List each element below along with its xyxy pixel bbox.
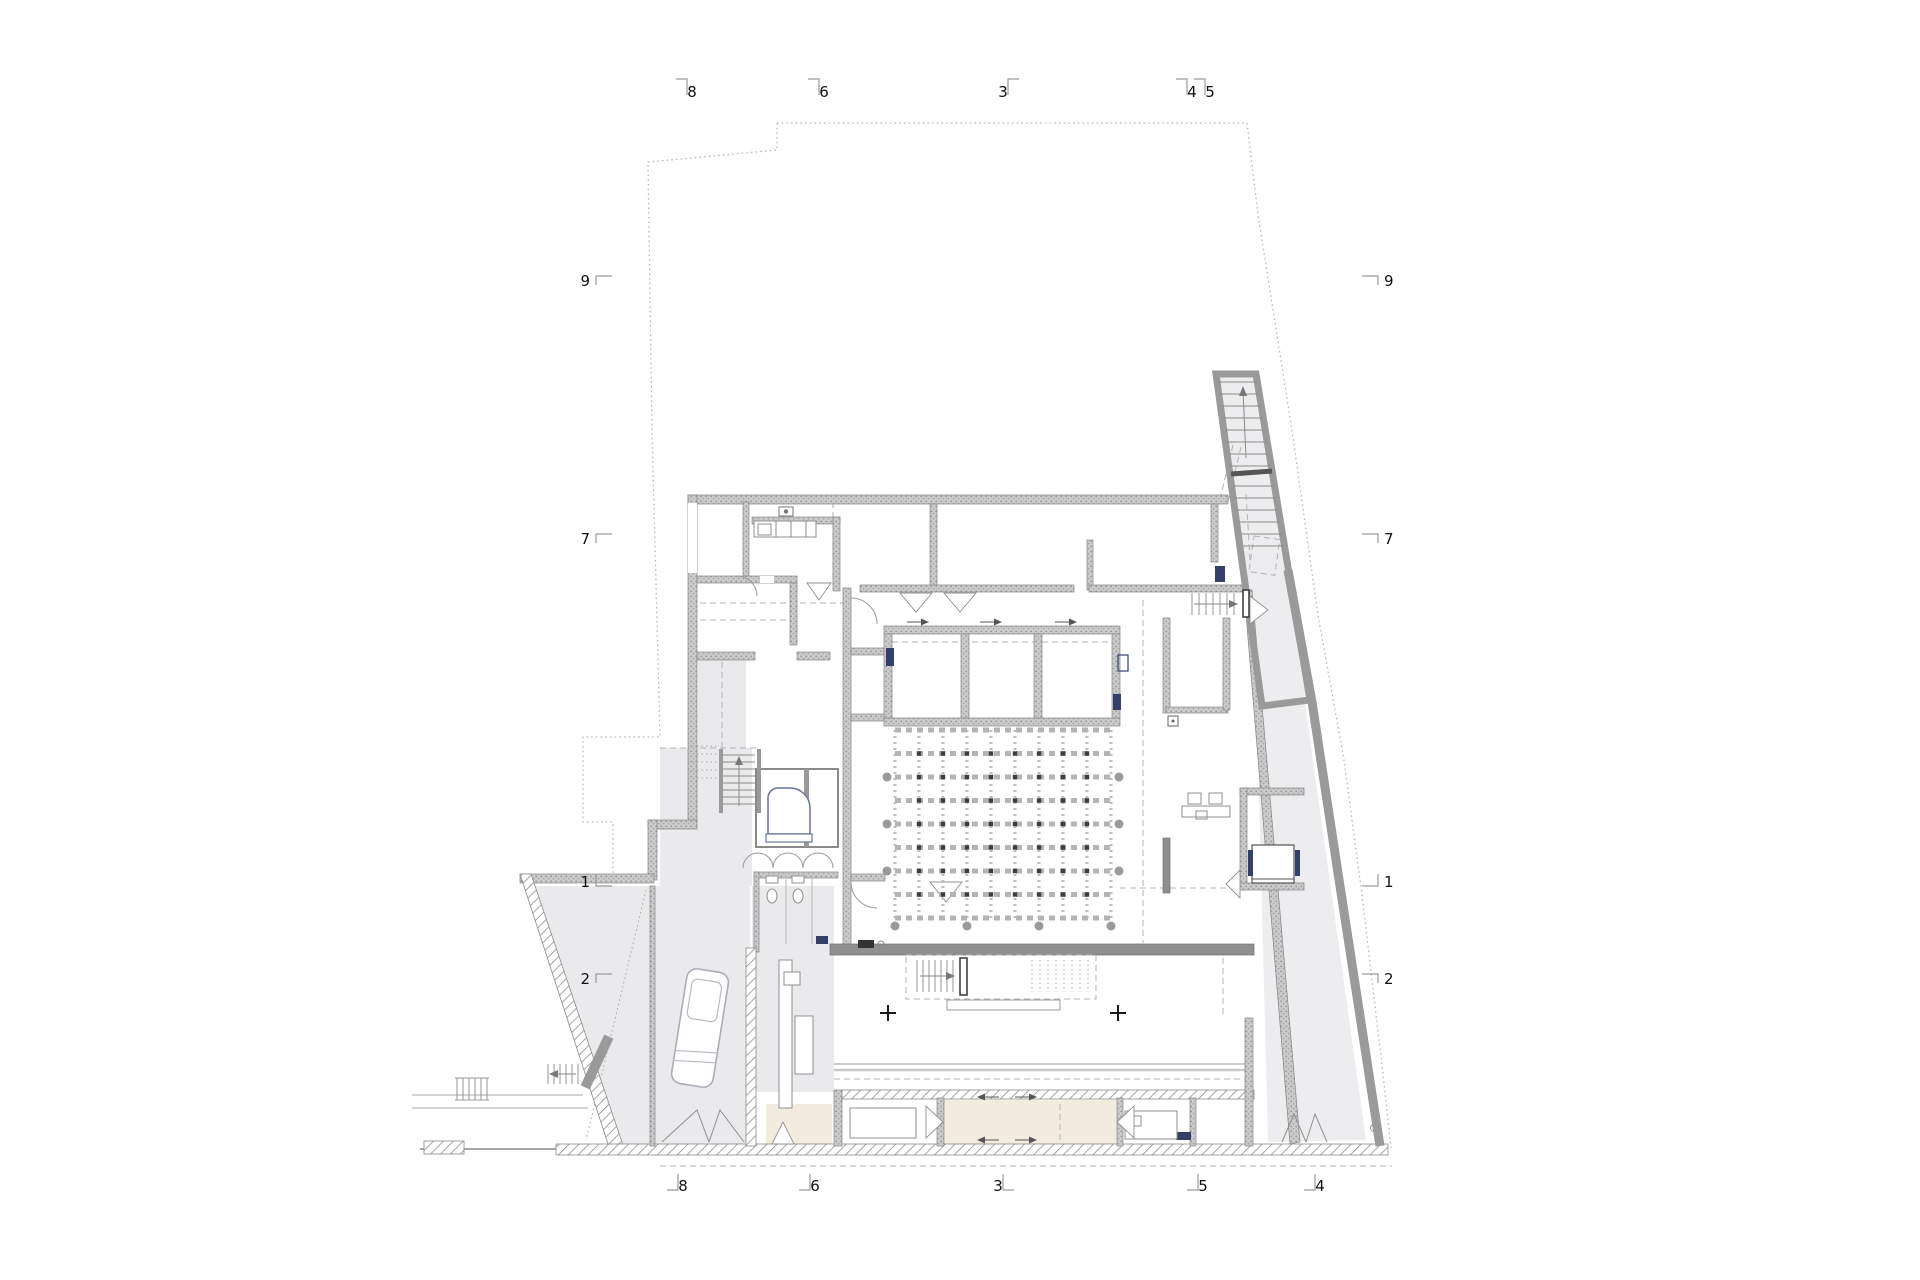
ceiling-hatch-symbol [779,507,793,516]
section-marker-left-7: 7 [580,530,612,548]
column [989,775,993,779]
column [1085,822,1089,826]
column [1085,892,1089,896]
svg-text:1: 1 [580,873,590,891]
hall-east-door [1113,694,1121,710]
column [965,798,969,802]
elevator [1248,845,1300,883]
column [941,775,945,779]
svg-text:5: 5 [1198,1177,1208,1195]
svg-text:2: 2 [580,970,590,988]
svg-text:3: 3 [998,83,1008,101]
driveway-floor [531,886,650,1146]
section-marker-right-7: 7 [1362,530,1394,548]
perimeter-column [1035,922,1044,931]
column [965,751,969,755]
perimeter-column [1115,773,1124,782]
column [917,869,921,873]
svg-text:3: 3 [993,1177,1003,1195]
svg-text:2: 2 [1384,970,1394,988]
column [917,751,921,755]
column [989,751,993,755]
column [1013,869,1017,873]
column [1061,775,1065,779]
hall-south-stair [906,955,1096,1010]
hall-column-grid [883,730,1124,931]
column [1037,798,1041,802]
column [1061,892,1065,896]
section-marker-bottom-8: 8 [667,1174,688,1195]
svg-text:9: 9 [1384,272,1394,290]
column [1013,798,1017,802]
northeast-stair [1192,590,1249,617]
section-marker-bottom-6: 6 [799,1174,820,1195]
perimeter-column [883,820,892,829]
perimeter-column [1115,867,1124,876]
column [1013,892,1017,896]
column [941,845,945,849]
column [941,751,945,755]
column [1085,869,1089,873]
south-room-desk [850,1108,916,1138]
lobby-floor [752,886,834,1092]
direction-arrow [1055,619,1077,626]
section-marker-right-1: 1 [1362,873,1394,891]
section-marker-top-5: 5 [1194,79,1215,101]
column [1037,869,1041,873]
column [1085,798,1089,802]
bay-band-bottom-wall [884,718,1120,726]
direction-arrow [980,619,1002,626]
column [1061,751,1065,755]
section-marker-top-3: 3 [998,79,1019,101]
svg-text:7: 7 [1384,530,1394,548]
column [941,798,945,802]
column [917,775,921,779]
floor-plan-canvas: 863458635497129712 [0,0,1920,1280]
svg-text:6: 6 [810,1177,820,1195]
office-desks [1182,793,1230,819]
outside-stair-gate [548,1064,578,1084]
perimeter-column [1107,922,1116,931]
south-wall [556,1144,1388,1155]
svg-text:9: 9 [580,272,590,290]
scallop-arcs [743,853,833,868]
column [989,798,993,802]
svg-text:6: 6 [819,83,829,101]
column [1061,869,1065,873]
column [941,822,945,826]
hall-west-wall [843,588,851,948]
perimeter-column [883,773,892,782]
column [1085,751,1089,755]
column [989,845,993,849]
column [989,869,993,873]
section-marker-top-4: 4 [1176,79,1197,101]
column [917,892,921,896]
column [1037,845,1041,849]
column [965,822,969,826]
column [965,775,969,779]
svg-text:4: 4 [1315,1177,1325,1195]
direction-arrow [907,619,929,626]
column [965,845,969,849]
column [941,869,945,873]
shaft-symbol [1168,716,1178,726]
section-marker-bottom-5: 5 [1187,1174,1208,1195]
column [1085,775,1089,779]
hall-south-wall [830,944,1254,955]
column [1037,892,1041,896]
svg-text:8: 8 [687,83,697,101]
section-marker-right-9: 9 [1362,272,1394,290]
column [1085,845,1089,849]
grand-piano [766,788,812,842]
section-marker-top-6: 6 [808,79,829,101]
survey-plus-mark [880,1005,896,1021]
column [941,892,945,896]
floor-areas [531,374,1366,1146]
section-marker-top-8: 8 [676,79,697,101]
perimeter-column [1115,820,1124,829]
column [1037,751,1041,755]
hall-west-door [886,648,894,666]
section-marker-bottom-3: 3 [993,1174,1014,1195]
perimeter-column [891,922,900,931]
column [965,869,969,873]
column [1037,822,1041,826]
garage-east-wall [746,948,756,1146]
column [1013,822,1017,826]
north-wall [688,495,1228,504]
section-marker-left-9: 9 [580,272,612,290]
column [917,845,921,849]
section-marker-bottom-4: 4 [1304,1174,1325,1195]
kitchen-counter [754,521,816,537]
column [989,892,993,896]
drawing-sheet: 863458635497129712 [0,0,1920,1280]
column [1061,798,1065,802]
perimeter-column [963,922,972,931]
column [989,822,993,826]
svg-text:8: 8 [678,1177,688,1195]
svg-text:7: 7 [580,530,590,548]
column [917,798,921,802]
column [1061,845,1065,849]
perimeter-column [883,867,892,876]
lobby-counter [795,1016,813,1074]
column [965,892,969,896]
svg-text:1: 1 [1384,873,1394,891]
outside-stair-sw [455,1078,489,1100]
column [917,822,921,826]
column [1013,775,1017,779]
svg-text:4: 4 [1187,83,1197,101]
annotations [880,619,1126,1144]
survey-plus-mark [1110,1005,1126,1021]
section-marker-right-2: 2 [1362,970,1394,988]
bay-band-top-wall [884,626,1120,634]
svg-text:5: 5 [1205,83,1215,101]
column [1037,775,1041,779]
column [1013,845,1017,849]
column [1013,751,1017,755]
column [1061,822,1065,826]
